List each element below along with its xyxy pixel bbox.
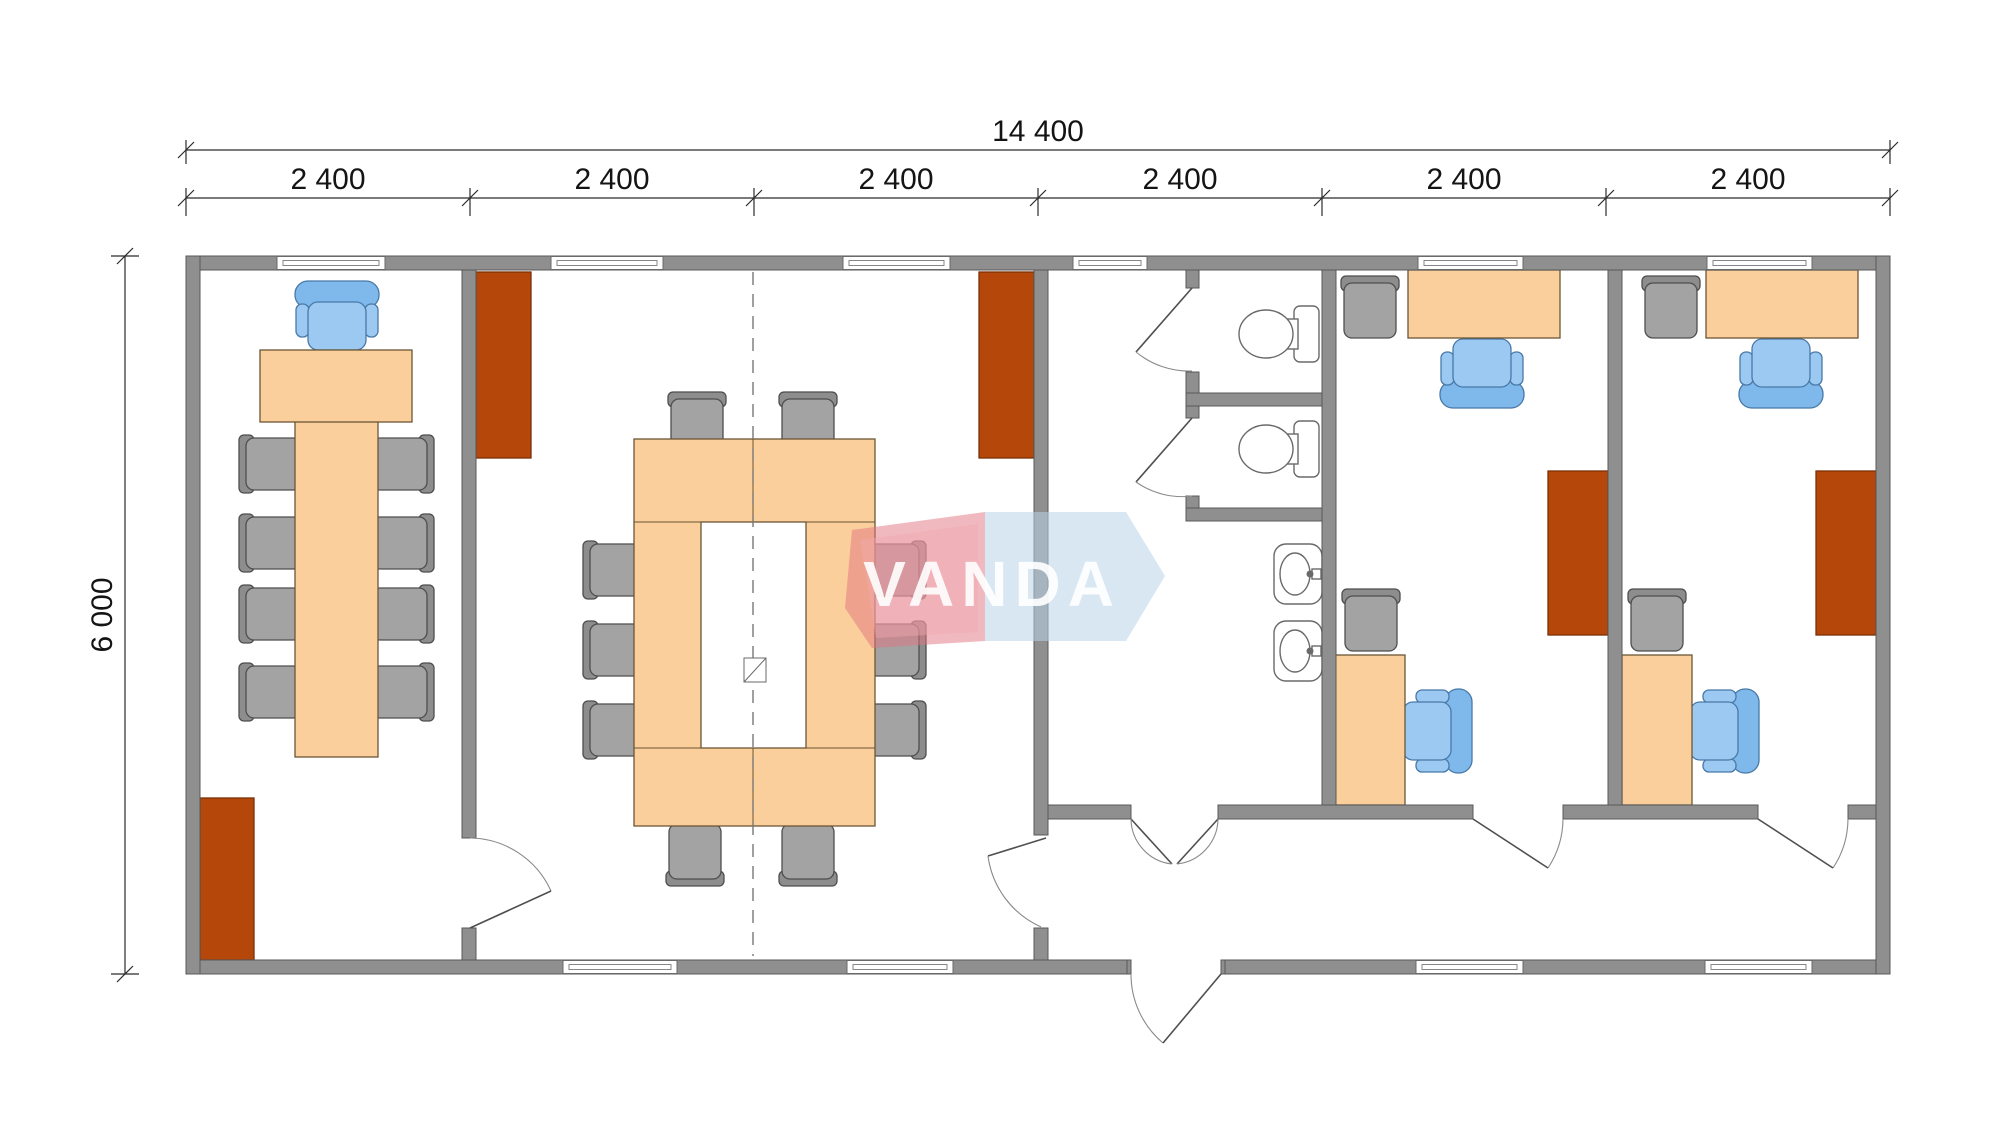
window — [1073, 257, 1147, 270]
partition-meeting-conference — [462, 270, 476, 838]
side-chair-gray — [372, 514, 434, 572]
side-chair-gray — [239, 435, 301, 493]
entrance-door — [1131, 974, 1221, 1043]
office-chair-blue — [1690, 689, 1759, 773]
stall-divider-wall — [1186, 393, 1322, 406]
office-desk — [1335, 655, 1405, 805]
head-desk — [260, 350, 412, 422]
sink — [1274, 544, 1322, 604]
dimension-module: 2 400 — [1710, 163, 1785, 196]
exterior-wall-top — [186, 256, 1890, 270]
side-chair-gray — [372, 435, 434, 493]
corridor-wall — [1048, 805, 1131, 819]
wardrobe — [979, 272, 1034, 458]
exterior-wall-right — [1876, 256, 1890, 974]
vanda-watermark: VANDA — [845, 512, 1165, 648]
executive-chair-blue — [295, 281, 379, 350]
entrance-opening — [1131, 958, 1221, 976]
window — [1418, 257, 1523, 270]
stall-wall-stub — [1186, 406, 1199, 418]
partition-wc-office1 — [1322, 270, 1336, 819]
wardrobe — [200, 798, 254, 960]
office-desk — [1706, 270, 1858, 338]
stall-wall-stub — [1186, 496, 1199, 508]
dimension-module: 2 400 — [1142, 163, 1217, 196]
side-chair-gray — [239, 663, 301, 721]
dimension-module: 2 400 — [858, 163, 933, 196]
office-desk — [1408, 270, 1560, 338]
exterior-wall-left — [186, 256, 200, 974]
corridor-wall — [1218, 805, 1473, 819]
side-chair-gray — [779, 824, 837, 886]
stall-wall-stub — [1186, 372, 1199, 393]
door-office1 — [1473, 819, 1563, 868]
visitor-chair-gray — [1642, 276, 1700, 338]
office-chair-blue — [1440, 339, 1524, 408]
partition-stub — [462, 928, 476, 960]
side-chair-gray — [372, 585, 434, 643]
office-chair-blue — [1739, 339, 1823, 408]
dimension-total-width: 14 400 — [992, 115, 1084, 148]
dimension-module: 2 400 — [290, 163, 365, 196]
double-door-hall-to-wc — [1131, 819, 1218, 864]
column-symbol — [744, 658, 766, 682]
window — [277, 257, 385, 270]
side-chair-gray — [666, 824, 724, 886]
door-jamb — [1127, 960, 1131, 974]
wardrobe — [476, 272, 531, 458]
door-jamb — [1221, 960, 1225, 974]
visitor-chair-gray — [1342, 589, 1400, 651]
corridor-wall — [1563, 805, 1758, 819]
window — [551, 257, 663, 270]
window — [843, 257, 950, 270]
wardrobe — [1548, 471, 1608, 635]
window — [563, 961, 677, 974]
dimension-total-height: 6 000 — [86, 577, 119, 652]
stall-door — [1136, 288, 1192, 371]
toilet — [1239, 421, 1319, 477]
exterior-wall-bottom — [186, 960, 1890, 974]
window — [847, 961, 953, 974]
door-conference-to-hall — [988, 838, 1046, 927]
door-office2 — [1758, 819, 1848, 868]
meeting-room-left — [200, 281, 434, 960]
visitor-chair-gray — [1628, 589, 1686, 651]
office-desk — [1622, 655, 1692, 805]
door-meeting-to-conference — [470, 838, 551, 928]
watermark-text: VANDA — [863, 548, 1121, 620]
dimension-module: 2 400 — [1426, 163, 1501, 196]
window — [1705, 961, 1812, 974]
partition-stub — [1034, 928, 1048, 960]
stall-door — [1136, 418, 1192, 497]
floor-plan-page: 14 400 2 400 2 400 2 400 2 400 2 400 2 4… — [0, 0, 2000, 1147]
office-chair-blue — [1403, 689, 1472, 773]
wc-zone — [1239, 306, 1322, 681]
partition-office1-office2 — [1608, 270, 1622, 819]
side-chair-gray — [239, 514, 301, 572]
wardrobe — [1816, 471, 1876, 635]
corridor-wall — [1848, 805, 1876, 819]
office-1 — [1335, 270, 1608, 805]
side-chair-gray — [239, 585, 301, 643]
visitor-chair-gray — [1341, 276, 1399, 338]
side-chair-gray — [372, 663, 434, 721]
window — [1416, 961, 1523, 974]
office-2 — [1622, 270, 1876, 805]
toilet — [1239, 306, 1319, 362]
sink — [1274, 621, 1322, 681]
stall-wall-stub — [1186, 270, 1199, 288]
stall-divider-wall — [1186, 508, 1322, 521]
window — [1707, 257, 1812, 270]
meeting-table — [295, 421, 378, 757]
dimension-module: 2 400 — [574, 163, 649, 196]
floor-plan-drawing: 14 400 2 400 2 400 2 400 2 400 2 400 2 4… — [0, 0, 2000, 1147]
